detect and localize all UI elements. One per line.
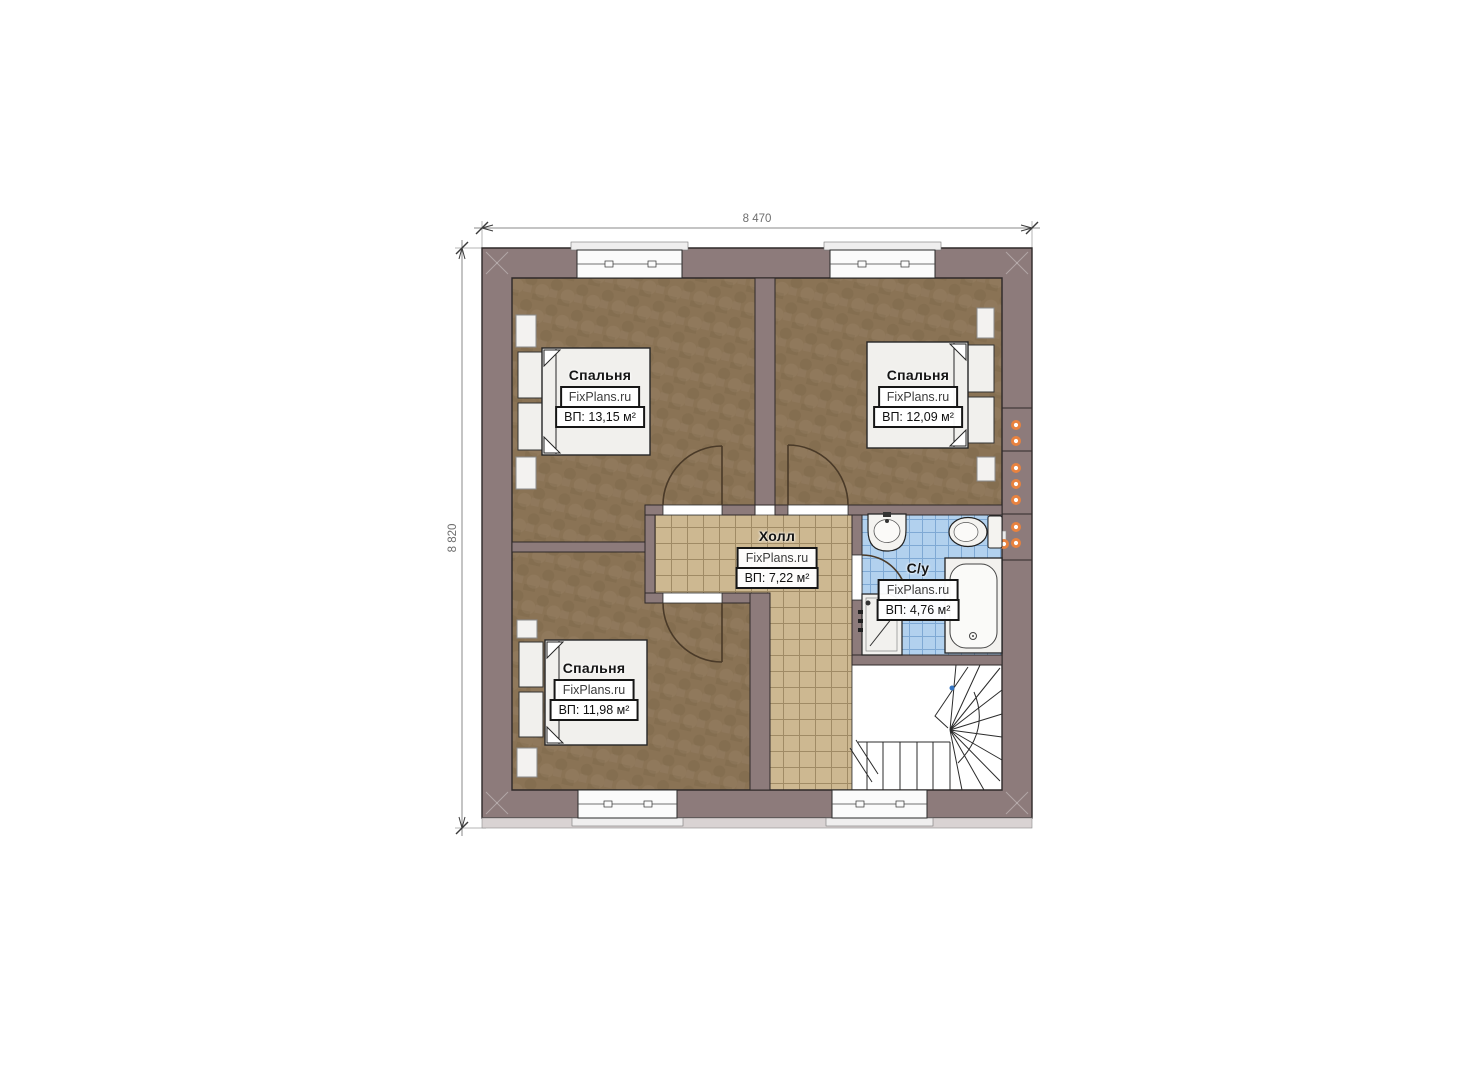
- room-label-bathroom: С/у FixPlans.ru ВП: 4,76 м²: [877, 560, 960, 621]
- room-label-hall: Холл FixPlans.ru ВП: 7,22 м²: [736, 528, 819, 589]
- wall-hall-stub: [645, 505, 655, 603]
- dimension-width-label: 8 470: [739, 213, 776, 225]
- stairwell-floor: [852, 665, 1002, 790]
- wall-bathroom-bottom: [852, 655, 1002, 665]
- watermark-badge: FixPlans.ru: [878, 579, 959, 601]
- toilet-icon: [949, 516, 1002, 548]
- room-area-label: ВП: 13,15 м²: [555, 406, 645, 428]
- room-name: Спальня: [563, 660, 626, 676]
- window-bottom-left: [572, 790, 683, 826]
- room-area-label: ВП: 7,22 м²: [736, 567, 819, 589]
- room-label-bedroom-bottom-left: Спальня FixPlans.ru ВП: 11,98 м²: [550, 660, 639, 721]
- room-area-label: ВП: 11,98 м²: [550, 699, 639, 721]
- watermark-badge: FixPlans.ru: [554, 679, 635, 701]
- window-top-left: [571, 242, 688, 278]
- room-area-label: ВП: 4,76 м²: [877, 599, 960, 621]
- floor-plan-page: 8 470 8 820 Спальня FixPlans.ru ВП: 13,1…: [0, 0, 1473, 1080]
- room-label-bedroom-top-right: Спальня FixPlans.ru ВП: 12,09 м²: [873, 367, 963, 428]
- wall-bedrooms-left: [512, 542, 645, 552]
- stair-marker-dot: [950, 686, 955, 691]
- room-name: С/у: [907, 560, 930, 576]
- room-name: Спальня: [887, 367, 950, 383]
- room-name: Спальня: [569, 367, 632, 383]
- dimension-height-label: 8 820: [447, 520, 459, 557]
- window-bottom-right: [826, 790, 933, 826]
- room-label-bedroom-top-left: Спальня FixPlans.ru ВП: 13,15 м²: [555, 367, 645, 428]
- watermark-badge: FixPlans.ru: [560, 386, 641, 408]
- wall-corridor: [750, 593, 770, 790]
- window-top-right: [824, 242, 941, 278]
- watermark-badge: FixPlans.ru: [737, 547, 818, 569]
- room-name: Холл: [759, 528, 795, 544]
- room-area-label: ВП: 12,09 м²: [873, 406, 963, 428]
- watermark-badge: FixPlans.ru: [878, 386, 959, 408]
- wall-central: [755, 278, 775, 505]
- sink-icon: [868, 512, 906, 551]
- foundation-edge: [482, 818, 1032, 828]
